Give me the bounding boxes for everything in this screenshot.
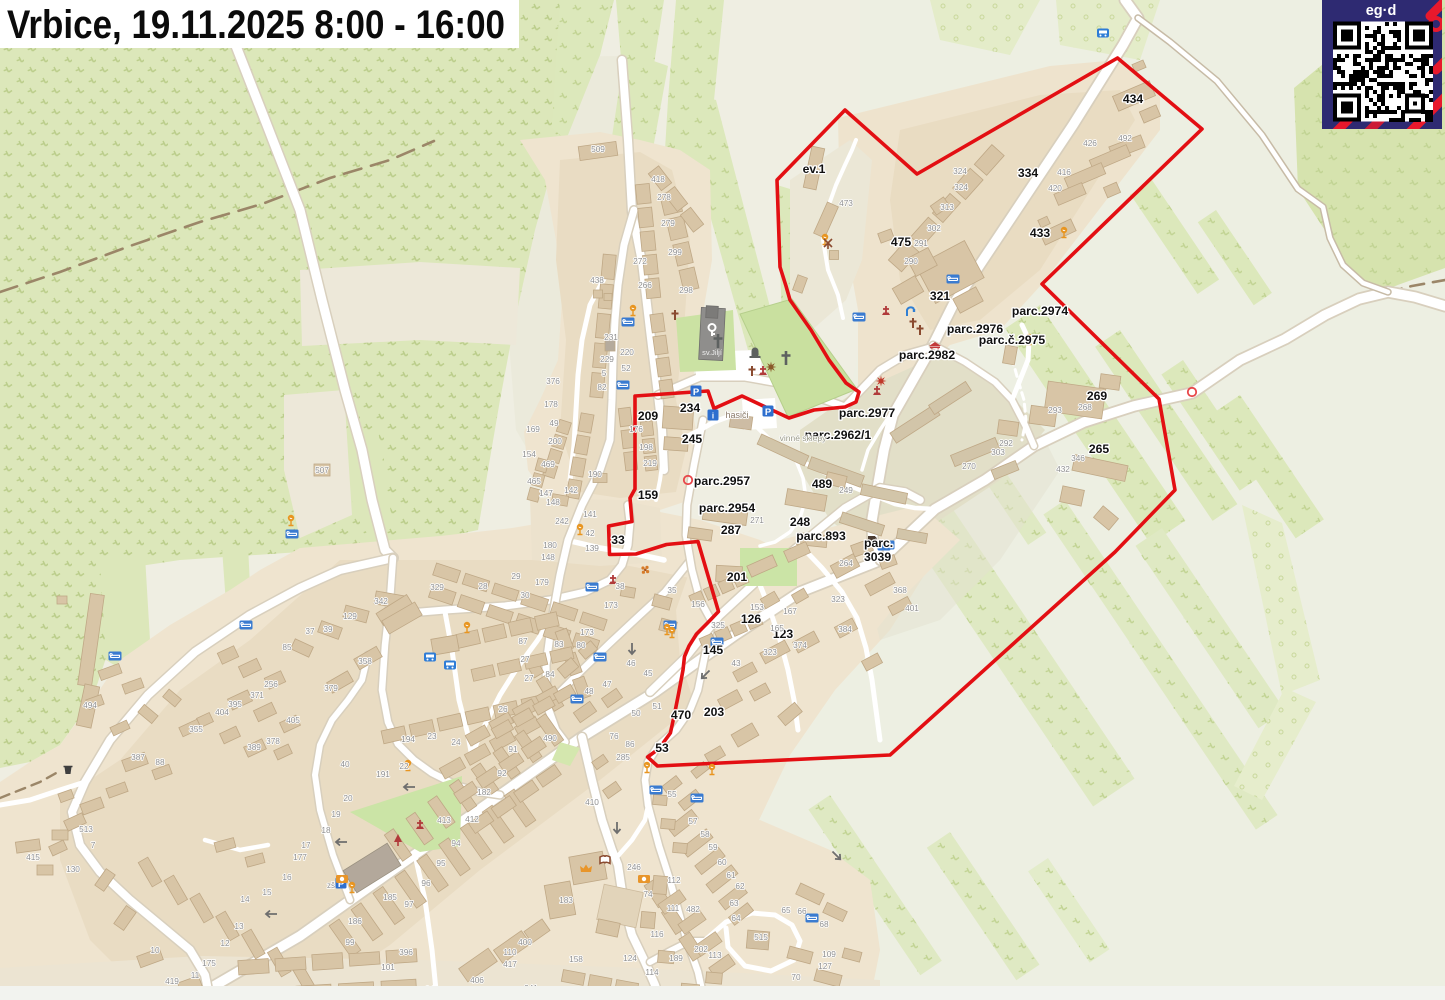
svg-text:178: 178	[544, 399, 558, 409]
svg-text:16: 16	[282, 872, 292, 882]
svg-text:101: 101	[381, 962, 395, 972]
svg-text:59: 59	[708, 842, 718, 852]
svg-text:i: i	[712, 412, 714, 421]
svg-text:395: 395	[228, 699, 242, 709]
svg-text:113: 113	[708, 950, 722, 960]
svg-text:179: 179	[535, 577, 549, 587]
svg-text:405: 405	[286, 715, 300, 725]
svg-text:parc.2974: parc.2974	[1012, 304, 1068, 318]
svg-text:186: 186	[348, 916, 362, 926]
svg-text:291: 291	[914, 238, 928, 248]
svg-text:426: 426	[1083, 138, 1097, 148]
svg-text:83: 83	[554, 639, 564, 649]
svg-text:51: 51	[652, 701, 662, 711]
svg-text:290: 290	[904, 256, 918, 266]
svg-text:198: 198	[639, 442, 653, 452]
svg-text:415: 415	[26, 852, 40, 862]
svg-text:271: 271	[750, 515, 764, 525]
svg-text:278: 278	[657, 192, 671, 202]
svg-text:parc.2977: parc.2977	[839, 406, 895, 420]
svg-text:434: 434	[1123, 92, 1144, 106]
svg-text:127: 127	[818, 961, 832, 971]
svg-text:465: 465	[527, 476, 541, 486]
svg-text:24: 24	[451, 737, 461, 747]
svg-text:494: 494	[83, 700, 97, 710]
svg-text:42: 42	[585, 528, 595, 538]
svg-text:410: 410	[585, 797, 599, 807]
svg-text:355: 355	[189, 724, 203, 734]
svg-text:287: 287	[721, 523, 742, 537]
svg-text:371: 371	[250, 690, 264, 700]
svg-text:142: 142	[564, 485, 578, 495]
svg-text:378: 378	[266, 736, 280, 746]
svg-text:190: 190	[588, 469, 602, 479]
svg-text:201: 201	[727, 570, 748, 584]
svg-text:194: 194	[401, 734, 415, 744]
svg-text:379: 379	[324, 683, 338, 693]
svg-text:92: 92	[497, 768, 507, 778]
svg-text:401: 401	[905, 603, 919, 613]
svg-text:110: 110	[503, 947, 517, 957]
svg-text:470: 470	[671, 708, 692, 722]
svg-text:27: 27	[524, 673, 534, 683]
svg-text:58: 58	[700, 829, 710, 839]
svg-text:229: 229	[600, 354, 614, 364]
svg-text:324: 324	[954, 182, 968, 192]
svg-text:376: 376	[546, 376, 560, 386]
svg-text:49: 49	[549, 418, 559, 428]
svg-text:112: 112	[667, 875, 681, 885]
svg-text:20: 20	[343, 793, 353, 803]
svg-text:368: 368	[893, 585, 907, 595]
svg-text:17: 17	[301, 840, 311, 850]
svg-text:48: 48	[584, 686, 594, 696]
svg-text:sv.Jiljí: sv.Jiljí	[702, 348, 723, 357]
svg-text:321: 321	[930, 289, 951, 303]
svg-text:27: 27	[520, 654, 530, 664]
svg-text:148: 148	[541, 552, 555, 562]
svg-text:492: 492	[1118, 133, 1132, 143]
svg-text:285: 285	[616, 752, 630, 762]
svg-text:220: 220	[620, 347, 634, 357]
svg-text:156: 156	[691, 599, 705, 609]
svg-text:268: 268	[1078, 402, 1092, 412]
svg-text:18: 18	[321, 825, 331, 835]
svg-text:200: 200	[548, 436, 562, 446]
svg-text:hasiči: hasiči	[725, 410, 748, 420]
svg-text:45: 45	[643, 668, 653, 678]
svg-text:13: 13	[234, 921, 244, 931]
svg-text:Vrbice, 19.11.2025 8:00 - 16:0: Vrbice, 19.11.2025 8:00 - 16:00	[7, 3, 505, 47]
svg-text:15: 15	[262, 887, 272, 897]
svg-text:264: 264	[839, 558, 853, 568]
svg-text:298: 298	[679, 285, 693, 295]
svg-text:62: 62	[735, 881, 745, 891]
svg-text:374: 374	[793, 640, 807, 650]
svg-text:203: 203	[704, 705, 725, 719]
svg-text:418: 418	[651, 174, 665, 184]
svg-text:74: 74	[643, 889, 653, 899]
svg-text:116: 116	[650, 929, 664, 939]
svg-text:129: 129	[343, 611, 357, 621]
svg-text:91: 91	[508, 744, 518, 754]
svg-text:19: 19	[331, 809, 341, 819]
svg-text:182: 182	[477, 787, 491, 797]
svg-text:88: 88	[155, 757, 165, 767]
svg-text:387: 387	[131, 752, 145, 762]
svg-text:153: 153	[750, 602, 764, 612]
svg-text:148: 148	[546, 497, 560, 507]
svg-text:438: 438	[590, 275, 604, 285]
svg-text:28: 28	[478, 581, 488, 591]
svg-text:302: 302	[927, 223, 941, 233]
svg-text:60: 60	[717, 857, 727, 867]
svg-text:272: 272	[633, 256, 647, 266]
svg-text:475: 475	[891, 235, 912, 249]
svg-text:68: 68	[819, 919, 829, 929]
svg-text:183: 183	[559, 895, 573, 905]
svg-text:342: 342	[374, 596, 388, 606]
svg-text:parc.2982: parc.2982	[899, 348, 955, 362]
svg-text:12: 12	[220, 938, 230, 948]
svg-text:40: 40	[340, 759, 350, 769]
svg-text:482: 482	[686, 904, 700, 914]
svg-text:159: 159	[638, 488, 659, 502]
svg-text:39: 39	[323, 624, 333, 634]
svg-text:52: 52	[621, 363, 631, 373]
svg-text:384: 384	[838, 624, 852, 634]
svg-text:334: 334	[1018, 166, 1039, 180]
svg-text:175: 175	[202, 958, 216, 968]
svg-text:329: 329	[430, 582, 444, 592]
svg-text:61: 61	[726, 870, 736, 880]
svg-text:490: 490	[543, 733, 557, 743]
svg-text:P: P	[693, 387, 700, 398]
svg-text:86: 86	[625, 739, 635, 749]
svg-text:22: 22	[399, 761, 409, 771]
svg-text:43: 43	[731, 658, 741, 668]
svg-text:37: 37	[305, 626, 315, 636]
svg-text:303: 303	[991, 447, 1005, 457]
svg-text:97: 97	[404, 899, 414, 909]
svg-text:23: 23	[427, 731, 437, 741]
svg-text:246: 246	[627, 862, 641, 872]
svg-text:234: 234	[680, 401, 701, 415]
svg-text:185: 185	[383, 892, 397, 902]
svg-text:26: 26	[498, 704, 508, 714]
svg-text:82: 82	[597, 382, 607, 392]
svg-text:50: 50	[631, 708, 641, 718]
svg-text:7: 7	[91, 840, 96, 850]
svg-text:64: 64	[731, 913, 741, 923]
svg-text:231: 231	[604, 332, 618, 342]
svg-text:109: 109	[822, 949, 836, 959]
svg-text:473: 473	[839, 198, 853, 208]
svg-text:266: 266	[638, 280, 652, 290]
svg-text:10: 10	[150, 945, 160, 955]
svg-text:324: 324	[953, 166, 967, 176]
svg-text:396: 396	[399, 947, 413, 957]
svg-text:256: 256	[264, 679, 278, 689]
svg-text:eg·d: eg·d	[1366, 3, 1397, 19]
svg-text:33: 33	[611, 533, 625, 547]
svg-text:420: 420	[1048, 183, 1062, 193]
svg-text:parc.: parc.	[864, 536, 893, 550]
svg-text:325: 325	[711, 620, 725, 630]
svg-text:76: 76	[609, 731, 619, 741]
svg-text:293: 293	[1048, 405, 1062, 415]
svg-text:parc.2957: parc.2957	[694, 474, 750, 488]
svg-text:154: 154	[522, 449, 536, 459]
svg-text:406: 406	[470, 975, 484, 985]
svg-text:173: 173	[604, 600, 618, 610]
svg-text:14: 14	[240, 894, 250, 904]
svg-text:209: 209	[638, 409, 659, 423]
svg-text:53: 53	[655, 741, 669, 755]
svg-text:85: 85	[282, 642, 292, 652]
svg-text:94: 94	[451, 838, 461, 848]
svg-text:145: 145	[703, 643, 724, 657]
svg-text:11: 11	[191, 970, 200, 980]
svg-text:202: 202	[694, 944, 708, 954]
svg-text:265: 265	[1089, 442, 1110, 456]
svg-text:parc.893: parc.893	[796, 529, 846, 543]
svg-text:96: 96	[421, 878, 431, 888]
svg-text:269: 269	[1087, 389, 1108, 403]
svg-text:404: 404	[215, 707, 229, 717]
svg-text:47: 47	[602, 679, 612, 689]
svg-text:413: 413	[437, 815, 451, 825]
svg-text:189: 189	[669, 953, 683, 963]
svg-text:169: 169	[526, 424, 540, 434]
svg-text:55: 55	[667, 789, 677, 799]
svg-text:zš: zš	[327, 881, 335, 890]
svg-text:489: 489	[812, 477, 833, 491]
svg-text:176: 176	[629, 424, 643, 434]
svg-text:242: 242	[555, 516, 569, 526]
svg-text:412: 412	[465, 814, 479, 824]
svg-text:515: 515	[754, 932, 768, 942]
svg-text:249: 249	[839, 485, 853, 495]
svg-text:87: 87	[518, 636, 528, 646]
svg-text:80: 80	[576, 640, 586, 650]
svg-text:parc.2954: parc.2954	[699, 501, 755, 515]
svg-text:30: 30	[520, 590, 530, 600]
svg-text:248: 248	[790, 515, 811, 529]
svg-text:513: 513	[79, 824, 93, 834]
svg-text:323: 323	[763, 647, 777, 657]
svg-text:3039: 3039	[864, 550, 891, 564]
svg-text:5: 5	[602, 368, 607, 378]
svg-text:29: 29	[511, 571, 521, 581]
svg-text:141: 141	[583, 509, 597, 519]
svg-text:parc.č.2975: parc.č.2975	[979, 333, 1046, 347]
svg-text:95: 95	[436, 858, 446, 868]
svg-text:279: 279	[661, 218, 675, 228]
svg-text:299: 299	[668, 247, 682, 257]
svg-text:173: 173	[580, 627, 594, 637]
svg-text:165: 165	[770, 623, 784, 633]
svg-text:270: 270	[962, 461, 976, 471]
svg-text:66: 66	[797, 906, 807, 916]
svg-text:191: 191	[376, 769, 390, 779]
svg-text:417: 417	[503, 959, 517, 969]
svg-text:46: 46	[626, 658, 636, 668]
svg-text:219: 219	[643, 458, 657, 468]
svg-text:126: 126	[741, 612, 762, 626]
svg-text:vinné sklepy: vinné sklepy	[780, 433, 828, 443]
svg-text:509: 509	[591, 144, 605, 154]
svg-text:245: 245	[682, 432, 703, 446]
svg-text:346: 346	[1071, 453, 1085, 463]
svg-text:177: 177	[293, 852, 307, 862]
svg-text:389: 389	[247, 742, 261, 752]
svg-text:99: 99	[345, 937, 355, 947]
svg-text:130: 130	[66, 864, 80, 874]
svg-text:158: 158	[569, 954, 583, 964]
svg-text:180: 180	[543, 540, 557, 550]
svg-text:323: 323	[831, 594, 845, 604]
svg-text:70: 70	[791, 972, 801, 982]
svg-text:124: 124	[623, 953, 637, 963]
svg-text:111: 111	[667, 903, 680, 913]
svg-text:ev.1: ev.1	[803, 162, 826, 176]
svg-text:84: 84	[545, 669, 555, 679]
svg-text:313: 313	[940, 202, 954, 212]
svg-text:35: 35	[667, 585, 677, 595]
svg-text:469: 469	[541, 459, 555, 469]
svg-text:358: 358	[358, 656, 372, 666]
svg-text:65: 65	[781, 905, 791, 915]
svg-text:139: 139	[585, 543, 599, 553]
svg-text:167: 167	[783, 606, 797, 616]
svg-text:416: 416	[1057, 167, 1071, 177]
svg-text:63: 63	[729, 898, 739, 908]
svg-text:400: 400	[518, 937, 532, 947]
svg-text:507: 507	[315, 465, 329, 475]
svg-text:38: 38	[615, 581, 625, 591]
svg-text:57: 57	[688, 816, 698, 826]
svg-text:P: P	[765, 407, 772, 418]
svg-text:432: 432	[1056, 464, 1070, 474]
svg-text:419: 419	[165, 976, 179, 986]
svg-text:114: 114	[645, 967, 659, 977]
svg-text:433: 433	[1030, 226, 1051, 240]
